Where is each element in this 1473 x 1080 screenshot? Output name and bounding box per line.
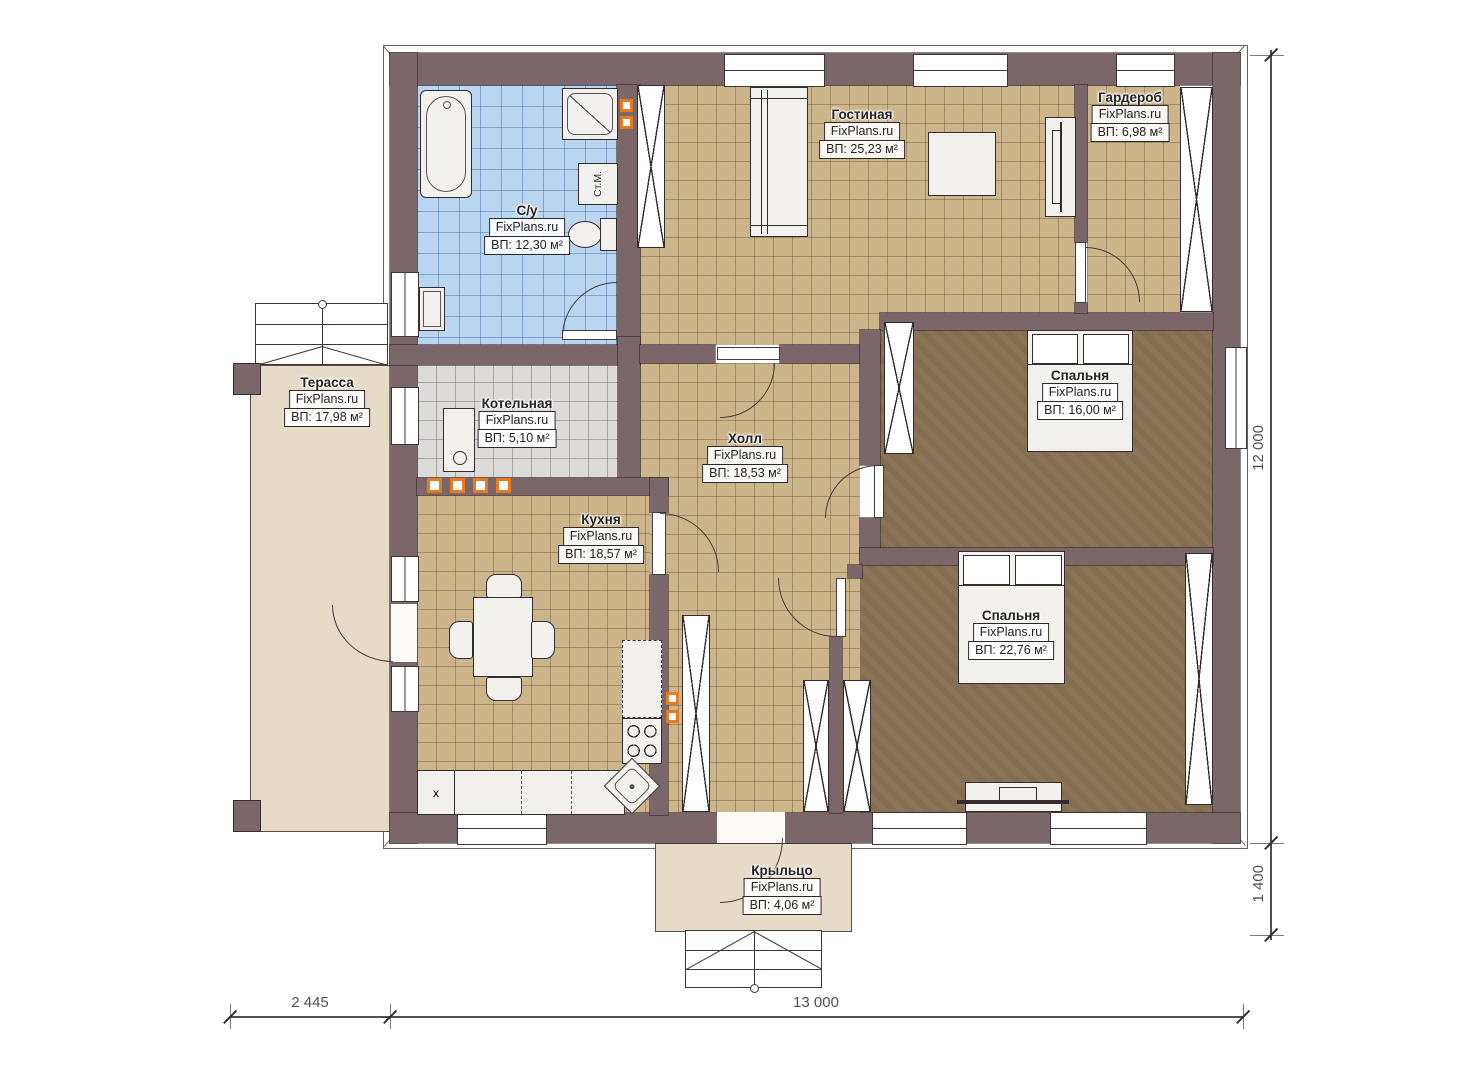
dimension-value-porch: 1 400 <box>1250 865 1267 903</box>
room-label-bedroom2: Спальня FixPlans.ru ВП: 22,76 м² <box>968 608 1054 660</box>
dining-table <box>473 597 533 677</box>
wall-bedroom1-left-a <box>860 330 880 465</box>
bathtub <box>420 90 472 198</box>
room-label-bedroom1: Спальня FixPlans.ru ВП: 16,00 м² <box>1037 368 1123 420</box>
floor-plan: Ст.М. <box>0 0 1473 1080</box>
room-label-boiler: Котельная FixPlans.ru ВП: 5,10 м² <box>478 396 557 448</box>
stove <box>622 718 662 764</box>
room-area: ВП: 17,98 м² <box>284 408 370 427</box>
window <box>913 54 1008 87</box>
wall-outer-left <box>390 53 417 843</box>
brand-badge: FixPlans.ru <box>744 878 821 897</box>
room-label-wardrobe: Гардероб FixPlans.ru ВП: 6,98 м² <box>1091 90 1170 142</box>
closet <box>803 680 829 812</box>
window <box>724 54 825 87</box>
window <box>457 812 547 845</box>
toilet-tank <box>600 218 617 251</box>
wall-bath-boiler <box>390 345 640 365</box>
heating-marker <box>496 478 511 493</box>
chair <box>486 574 522 598</box>
room-label-bathroom: С/у FixPlans.ru ВП: 12,30 м² <box>484 203 570 255</box>
closet <box>843 680 871 812</box>
brand-badge: FixPlans.ru <box>707 446 784 465</box>
room-label-porch: Крыльцо FixPlans.ru ВП: 4,06 м² <box>743 863 822 915</box>
wall-living-bedroom1 <box>880 313 1213 330</box>
terrace-stairs <box>255 303 388 365</box>
heating-marker <box>620 99 633 112</box>
window <box>1116 54 1175 87</box>
room-area: ВП: 5,10 м² <box>478 429 557 448</box>
dimension-value-left: 2 445 <box>291 994 329 1011</box>
terrace-area <box>250 365 392 832</box>
room-area: ВП: 6,98 м² <box>1091 123 1170 142</box>
chair <box>531 621 555 659</box>
washing-machine-label: Ст.М. <box>592 171 604 197</box>
window <box>1225 347 1247 449</box>
toilet <box>568 221 602 248</box>
boiler-unit <box>443 408 475 472</box>
heating-marker <box>620 116 633 129</box>
kitchen-unit-x: x <box>417 770 455 815</box>
window <box>391 272 419 337</box>
room-name: Терасса <box>300 375 354 390</box>
dimension-line-right <box>1270 50 1272 940</box>
brand-badge: FixPlans.ru <box>489 218 566 237</box>
bathroom-sink <box>419 287 445 331</box>
closet <box>884 322 914 454</box>
brand-badge: FixPlans.ru <box>1092 105 1169 124</box>
room-name: Котельная <box>482 396 553 411</box>
fridge <box>622 640 662 718</box>
tv-screen <box>957 800 1069 804</box>
room-name: С/у <box>516 203 537 218</box>
dimension-value-height: 12 000 <box>1250 425 1267 471</box>
heating-marker <box>473 478 488 493</box>
door-leaf <box>717 347 780 360</box>
wall-hall-top-a <box>640 345 715 363</box>
room-name: Крыльцо <box>751 863 812 878</box>
room-name: Холл <box>728 431 762 446</box>
room-label-hall: Холл FixPlans.ru ВП: 18,53 м² <box>702 431 788 483</box>
window <box>391 387 419 445</box>
room-area: ВП: 22,76 м² <box>968 641 1054 660</box>
closet <box>637 85 665 248</box>
chair <box>449 621 473 659</box>
kitchen-unit-x-label: x <box>433 786 439 800</box>
terrace-post-bottom <box>233 800 261 832</box>
room-area: ВП: 4,06 м² <box>743 896 822 915</box>
brand-badge: FixPlans.ru <box>563 527 640 546</box>
door-leaf <box>836 578 846 637</box>
wall-boiler-hall <box>618 337 640 478</box>
dimension-value-width: 13 000 <box>793 994 839 1011</box>
wall-living-wardrobe-stub <box>1075 303 1087 313</box>
room-area: ВП: 18,53 м² <box>702 464 788 483</box>
brand-badge: FixPlans.ru <box>973 623 1050 642</box>
washing-machine: Ст.М. <box>578 163 618 205</box>
wall-bedroom2-left-a <box>848 565 862 578</box>
dimension-line-bottom <box>230 1016 1243 1018</box>
room-area: ВП: 18,57 м² <box>558 545 644 564</box>
closet <box>682 615 710 812</box>
closet <box>1185 553 1213 805</box>
window <box>391 556 419 602</box>
heating-marker <box>666 710 679 723</box>
shelf-unit <box>750 87 808 237</box>
window <box>872 812 967 845</box>
room-label-kitchen: Кухня FixPlans.ru ВП: 18,57 м² <box>558 512 644 564</box>
room-name: Гардероб <box>1098 90 1162 105</box>
heating-marker <box>450 478 465 493</box>
coffee-table <box>928 132 996 196</box>
room-area: ВП: 25,23 м² <box>819 140 905 159</box>
heating-marker <box>427 478 442 493</box>
porch-stairs <box>685 930 822 988</box>
chair <box>486 677 522 701</box>
tv-stand <box>965 782 1062 812</box>
heating-marker <box>666 692 679 705</box>
brand-badge: FixPlans.ru <box>824 122 901 141</box>
closet <box>1180 87 1213 312</box>
room-label-living: Гостиная FixPlans.ru ВП: 25,23 м² <box>819 107 905 159</box>
room-area: ВП: 12,30 м² <box>484 236 570 255</box>
terrace-door-opening <box>391 604 417 662</box>
room-name: Спальня <box>1051 368 1109 383</box>
room-name: Кухня <box>581 512 620 527</box>
wall-kitchen-hall-a <box>650 478 668 512</box>
brand-badge: FixPlans.ru <box>289 390 366 409</box>
window <box>1050 812 1147 845</box>
wall-living-wardrobe <box>1075 85 1087 242</box>
brand-badge: FixPlans.ru <box>1042 383 1119 402</box>
brand-badge: FixPlans.ru <box>479 411 556 430</box>
terrace-post-top <box>233 363 261 395</box>
room-name: Гостиная <box>831 107 892 122</box>
room-name: Спальня <box>982 608 1040 623</box>
window <box>391 666 419 712</box>
room-area: ВП: 16,00 м² <box>1037 401 1123 420</box>
shower <box>562 88 618 140</box>
tv-stand <box>1045 117 1076 217</box>
room-label-terrace: Терасса FixPlans.ru ВП: 17,98 м² <box>284 375 370 427</box>
wall-bedroom2-left-b <box>830 637 842 813</box>
